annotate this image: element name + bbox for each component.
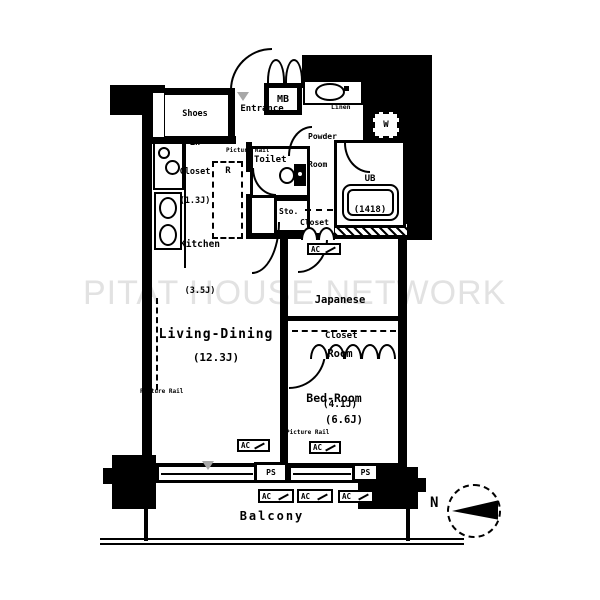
ac-label: AC bbox=[311, 245, 320, 254]
ac-unit-box: AC bbox=[237, 439, 270, 452]
mb-door-leaf-icon bbox=[285, 59, 303, 84]
wall-segment bbox=[418, 478, 426, 492]
living-dining-size-label: (12.3J) bbox=[186, 352, 246, 365]
compass-north-label: N bbox=[430, 495, 438, 511]
picture-rail-line bbox=[156, 298, 158, 390]
mb-label: MB bbox=[277, 94, 289, 105]
wall-segment bbox=[398, 236, 407, 467]
balcony-label: Balcony bbox=[232, 510, 312, 524]
wall-segment bbox=[103, 468, 112, 484]
ac-pipe-icon bbox=[317, 493, 328, 500]
picture-rail-label: Picture Rail bbox=[140, 389, 183, 396]
storage-label: Sto. bbox=[279, 207, 298, 216]
toilet-button-icon bbox=[298, 172, 302, 176]
faucet-icon bbox=[344, 86, 349, 91]
pipe-space-box: PS bbox=[352, 463, 379, 482]
ac-label: AC bbox=[241, 441, 250, 450]
wall-segment bbox=[405, 145, 432, 240]
ac-pipe-icon bbox=[254, 443, 265, 450]
washer-label: W bbox=[383, 120, 388, 130]
unit-bath-label: UB (1418) bbox=[344, 153, 396, 236]
ac-unit-box: AC bbox=[258, 489, 294, 503]
picture-rail-label: Picture Rail bbox=[286, 430, 329, 437]
ac-label: AC bbox=[262, 492, 271, 501]
floor-plan: PITAT HOUSE NETWORK MB W bbox=[0, 0, 600, 600]
entry-marker-icon bbox=[237, 92, 249, 101]
ac-label: AC bbox=[342, 492, 351, 501]
ac-unit-box: AC bbox=[338, 490, 374, 503]
washing-machine-box: W bbox=[373, 112, 399, 138]
closet-depth-line bbox=[305, 209, 333, 211]
kitchen-label: Kitchen (3.5J) bbox=[170, 203, 230, 334]
picture-rail-line bbox=[284, 382, 286, 428]
picture-rail-label: Picture Rail bbox=[226, 148, 269, 155]
closet-label: Closet bbox=[300, 218, 329, 227]
bedroom-size-label: (6.6J) bbox=[322, 414, 366, 426]
refrigerator-label: R bbox=[220, 166, 236, 176]
toilet-label: Toilet bbox=[254, 155, 287, 165]
wall-segment bbox=[112, 455, 156, 509]
hall-living-door-arc bbox=[252, 222, 280, 274]
ac-unit-box: AC bbox=[307, 243, 341, 255]
toilet-bowl-icon bbox=[279, 167, 295, 184]
balcony-edge-line bbox=[100, 538, 464, 545]
wall-segment bbox=[142, 85, 152, 470]
living-dining-label: Living-Dining bbox=[152, 328, 280, 343]
powder-room-label: Powder Room bbox=[308, 114, 337, 188]
ac-label: AC bbox=[301, 492, 310, 501]
bedroom-label: Bed-Room bbox=[296, 392, 372, 405]
entry-marker-icon bbox=[202, 461, 214, 470]
pipe-space-box: PS bbox=[254, 462, 288, 483]
ps-label: PS bbox=[361, 468, 371, 477]
closet-label: Closet bbox=[325, 331, 358, 341]
ac-pipe-icon bbox=[278, 493, 289, 500]
closet-fold-door-icon bbox=[318, 227, 335, 240]
linen-label: Linen bbox=[331, 104, 351, 111]
ac-pipe-icon bbox=[325, 246, 336, 253]
balcony-divider bbox=[406, 509, 410, 541]
ps-label: PS bbox=[266, 468, 276, 477]
sliding-window bbox=[290, 467, 354, 481]
ac-unit-box: AC bbox=[297, 489, 333, 503]
vanity-sink-icon bbox=[315, 83, 345, 101]
balcony-divider bbox=[144, 509, 148, 541]
closet-fold-door-icon bbox=[301, 227, 318, 240]
entrance-label: Entrance bbox=[230, 104, 294, 114]
ac-pipe-icon bbox=[358, 494, 369, 501]
